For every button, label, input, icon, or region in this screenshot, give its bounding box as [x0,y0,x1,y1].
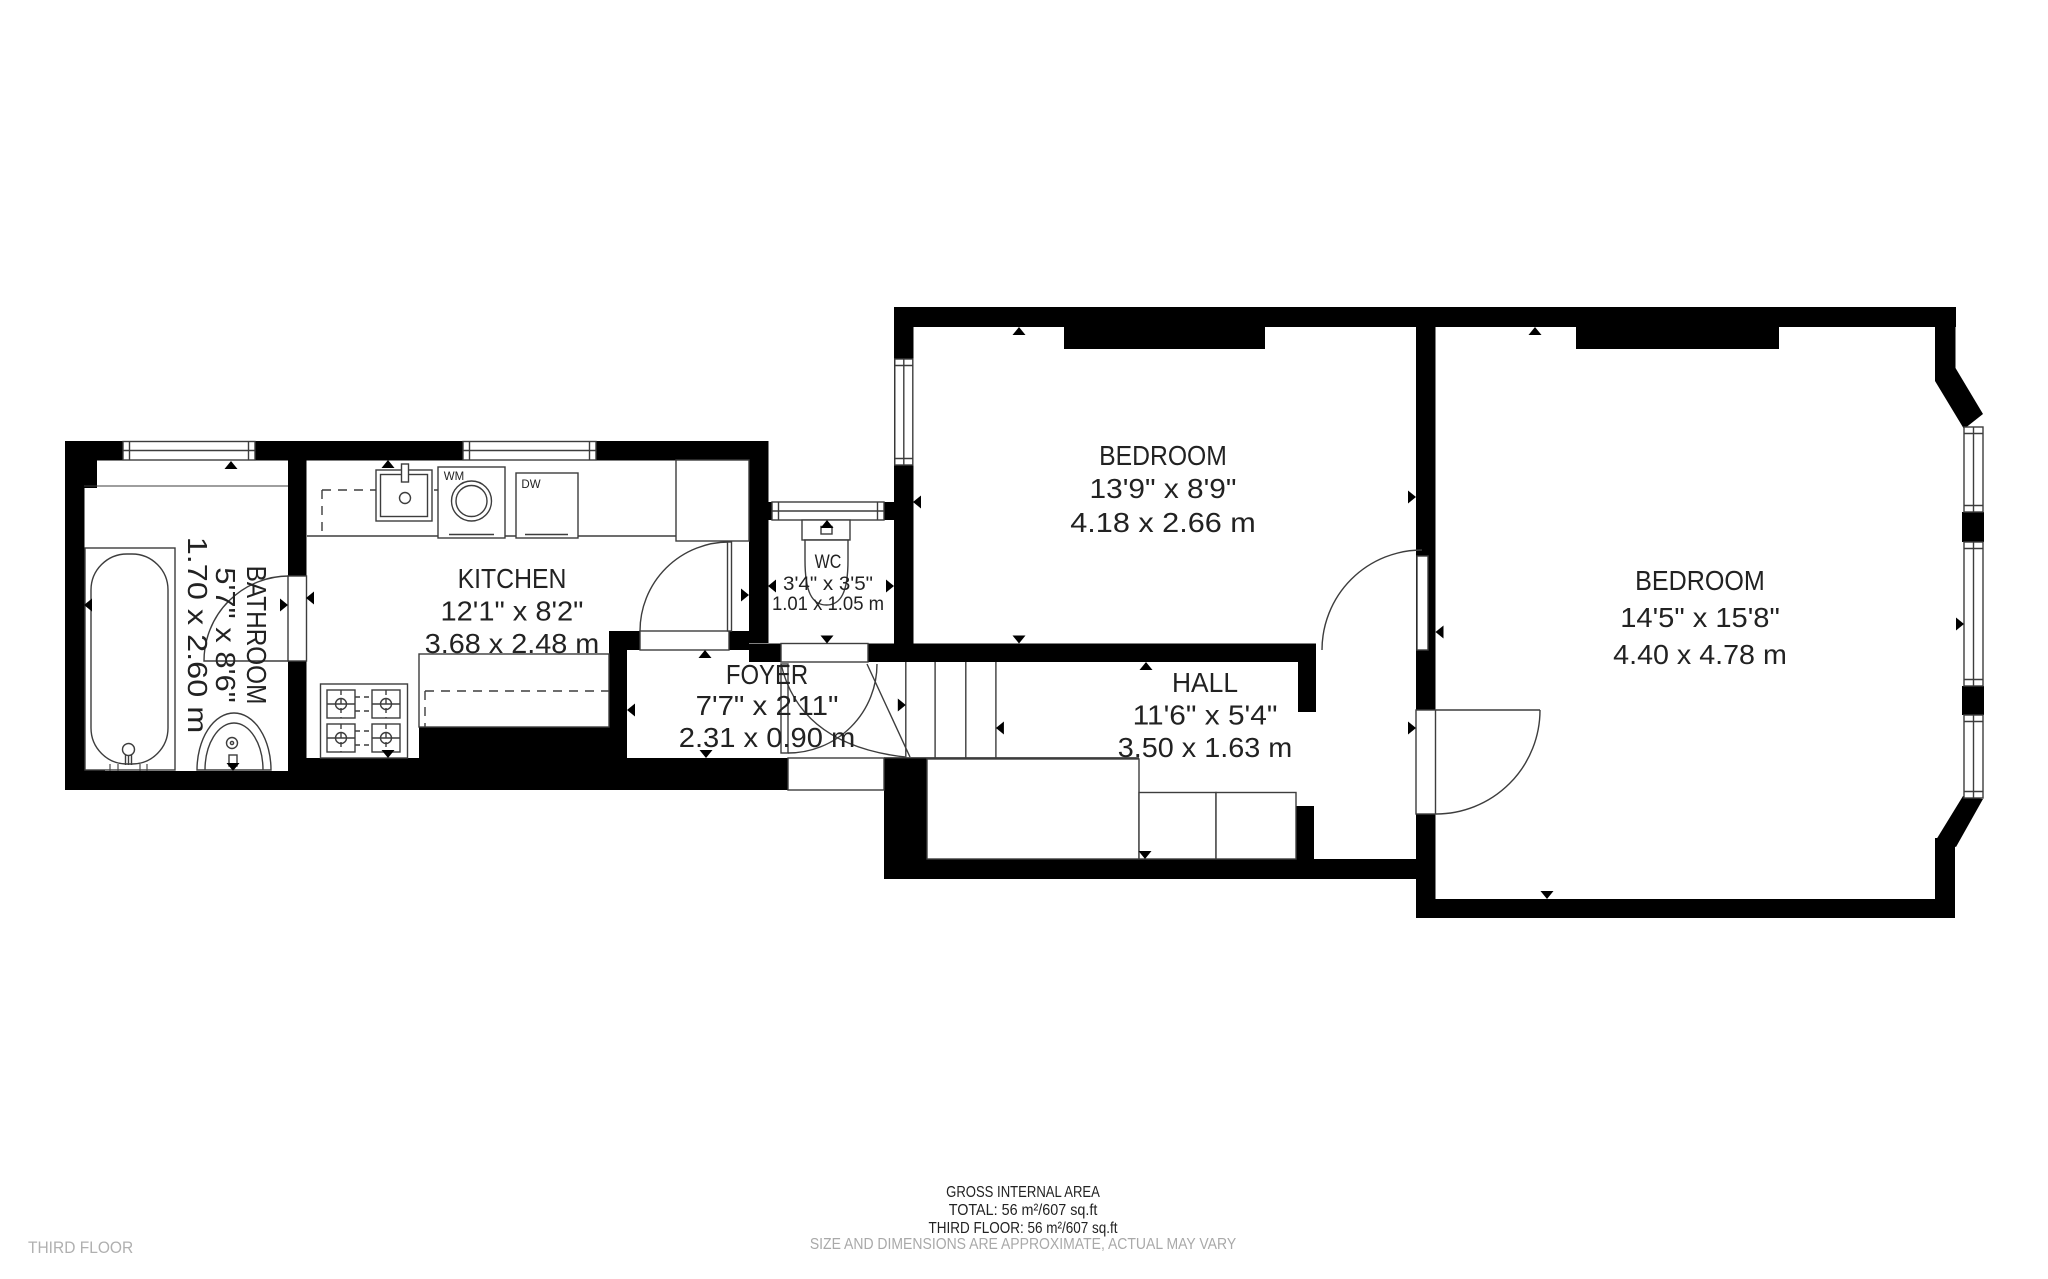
svg-text:7'7" x 2'11": 7'7" x 2'11" [696,691,839,722]
svg-text:WC: WC [815,551,842,573]
svg-text:GROSS INTERNAL AREA: GROSS INTERNAL AREA [946,1184,1100,1202]
svg-text:FOYER: FOYER [726,658,808,690]
svg-text:4.40 x 4.78 m: 4.40 x 4.78 m [1613,639,1787,671]
svg-text:BATHROOM: BATHROOM [241,566,273,705]
svg-text:13'9" x 8'9": 13'9" x 8'9" [1090,474,1237,505]
svg-text:11'6" x 5'4": 11'6" x 5'4" [1133,700,1278,731]
svg-text:KITCHEN: KITCHEN [458,563,567,595]
svg-text:1.70 x 2.60 m: 1.70 x 2.60 m [182,537,212,734]
svg-text:12'1" x 8'2": 12'1" x 8'2" [441,596,584,627]
svg-text:HALL: HALL [1172,666,1238,698]
svg-text:3.68 x 2.48 m: 3.68 x 2.48 m [425,628,599,660]
svg-text:2.31 x 0.90 m: 2.31 x 0.90 m [679,723,856,754]
svg-text:3'4" x 3'5": 3'4" x 3'5" [783,574,873,595]
svg-text:1.01 x 1.05 m: 1.01 x 1.05 m [772,593,884,614]
svg-text:BEDROOM: BEDROOM [1099,440,1227,472]
svg-text:4.18 x 2.66 m: 4.18 x 2.66 m [1070,507,1255,538]
svg-text:DW: DW [521,479,540,491]
svg-text:TOTAL: 56 m²/607 sq.ft: TOTAL: 56 m²/607 sq.ft [949,1201,1098,1219]
svg-text:THIRD FLOOR: THIRD FLOOR [28,1238,133,1257]
svg-text:3.50 x 1.63 m: 3.50 x 1.63 m [1118,732,1292,764]
svg-text:WM: WM [444,471,464,483]
svg-text:SIZE AND DIMENSIONS ARE APPROX: SIZE AND DIMENSIONS ARE APPROXIMATE, ACT… [810,1235,1236,1253]
svg-text:BEDROOM: BEDROOM [1635,565,1765,597]
svg-text:5'7" x 8'6": 5'7" x 8'6" [209,567,240,702]
svg-text:14'5" x 15'8": 14'5" x 15'8" [1620,602,1780,633]
